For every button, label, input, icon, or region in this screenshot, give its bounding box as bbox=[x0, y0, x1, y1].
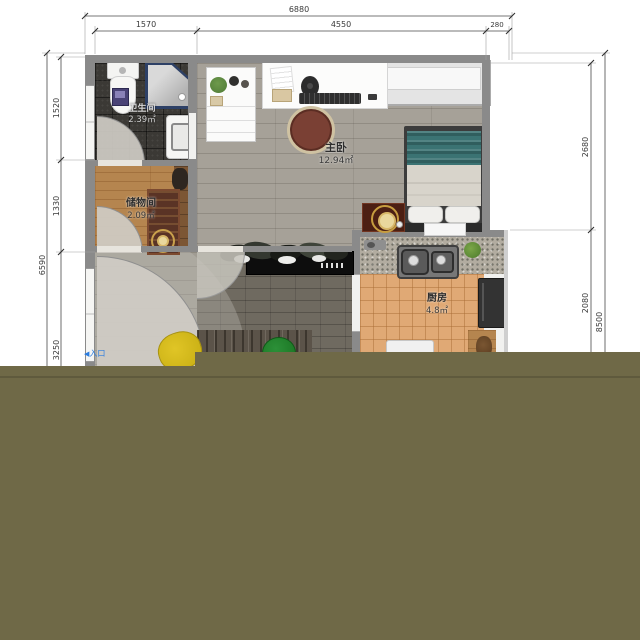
dim-top-seg2: 4550 bbox=[324, 20, 358, 30]
dim-left-seg3: 3250 bbox=[52, 333, 62, 367]
overlay-block-right bbox=[195, 352, 640, 640]
overlay-seam-line bbox=[0, 376, 640, 378]
dim-left-seg2: 1330 bbox=[52, 189, 62, 223]
overlay-block-left bbox=[0, 366, 195, 640]
dim-right-total: 8500 bbox=[595, 305, 605, 339]
dim-right-seg2: 2080 bbox=[581, 286, 591, 320]
floorplan-canvas: 卫生间 2.39㎡ 储物间 2.09㎡ 主卧 12.94㎡ 厨房 4.8㎡ ◀入… bbox=[0, 0, 640, 640]
dim-left-seg1: 1520 bbox=[52, 91, 62, 125]
dim-top-seg3: 280 bbox=[480, 20, 514, 30]
dim-top-seg1: 1570 bbox=[129, 20, 163, 30]
dim-top-total: 6880 bbox=[282, 5, 316, 15]
dim-left-total: 6590 bbox=[38, 248, 48, 282]
dim-right-seg1: 2680 bbox=[581, 130, 591, 164]
